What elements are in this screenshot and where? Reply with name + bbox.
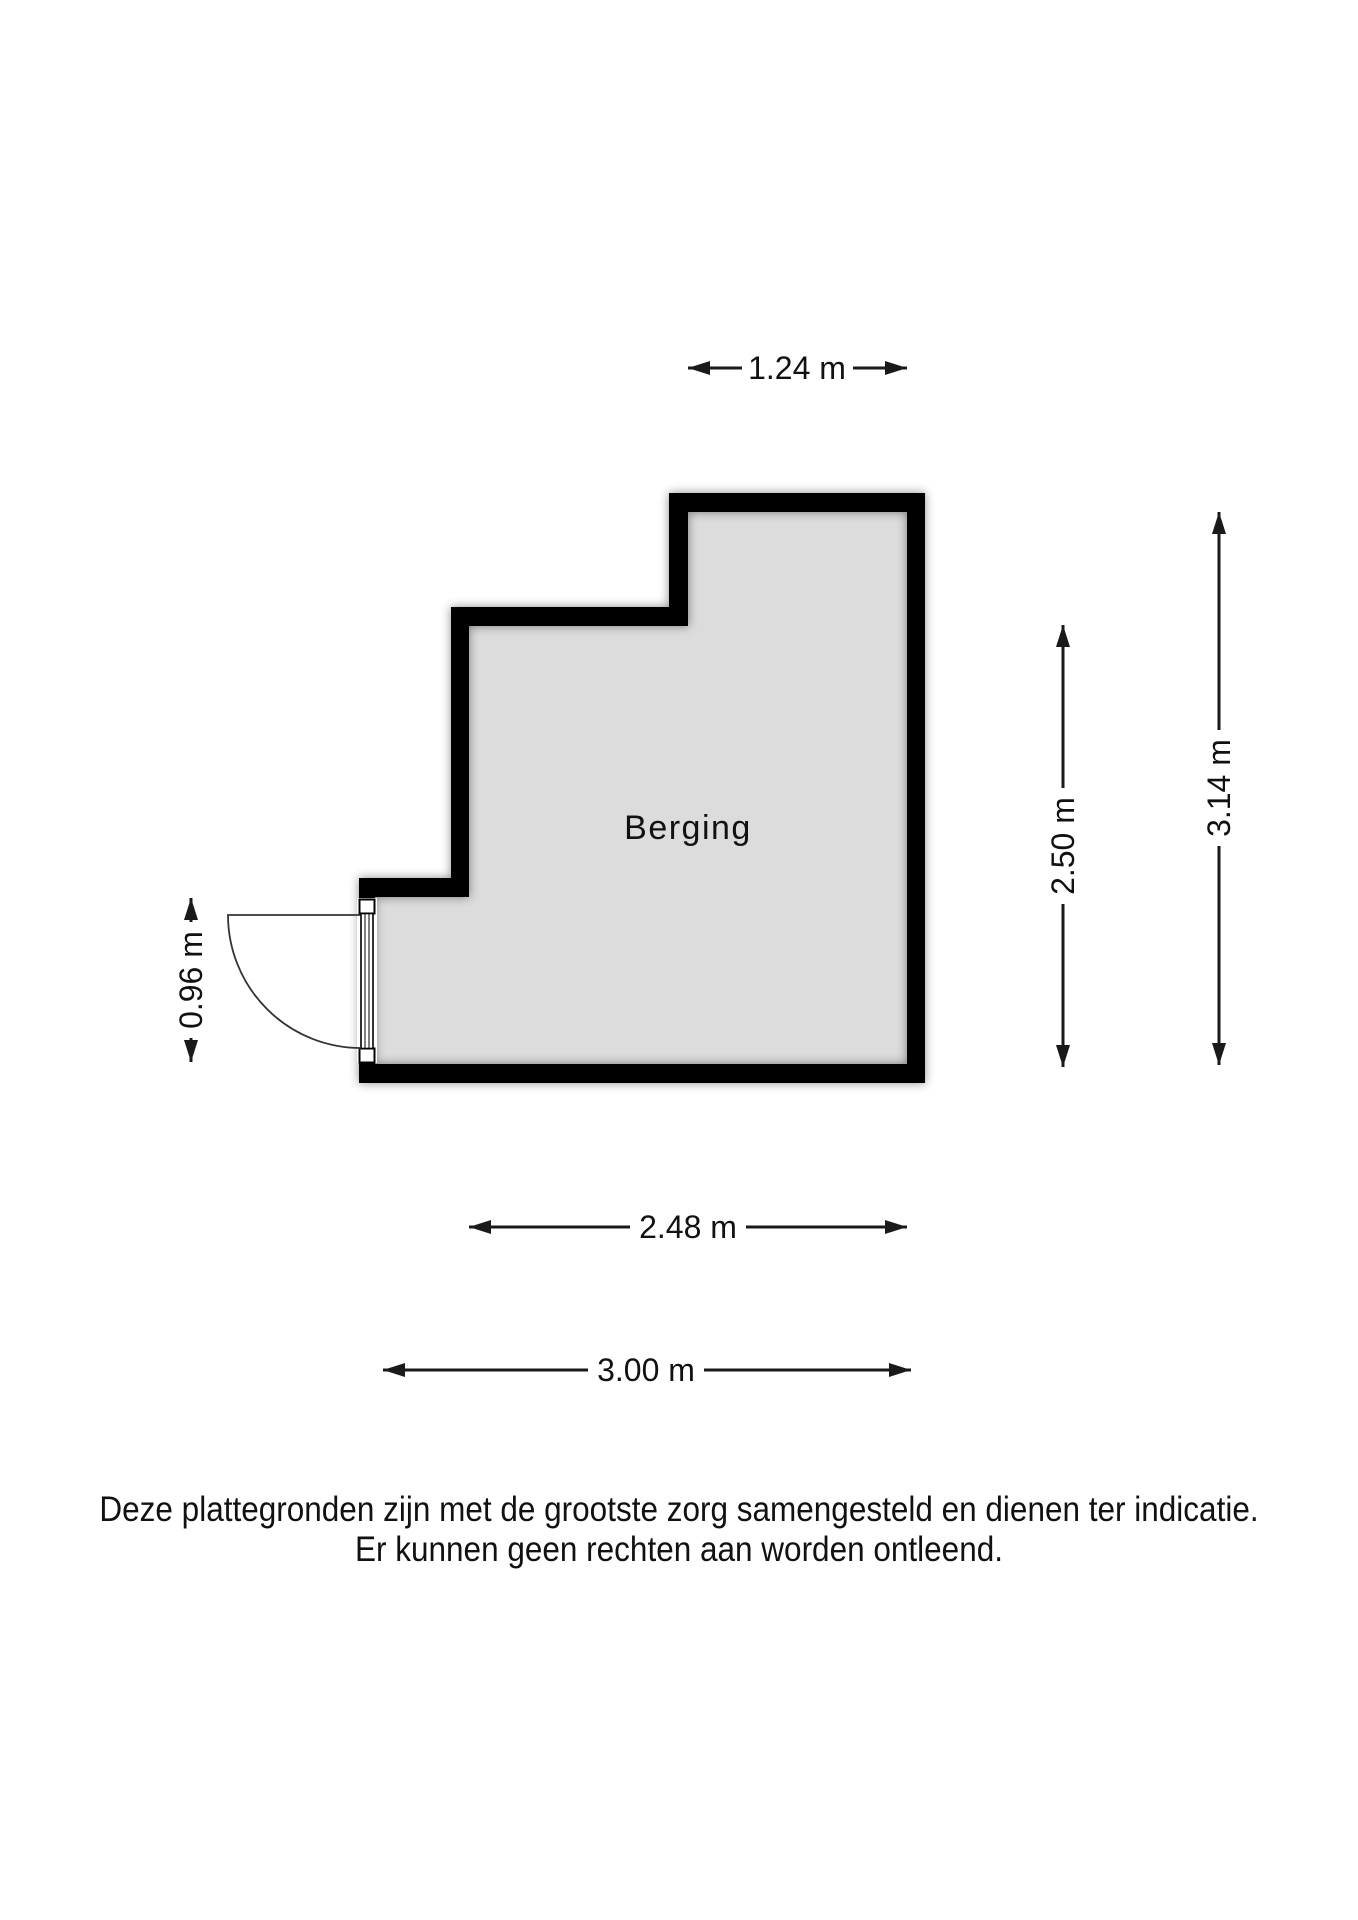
dim-inner-height-label: 2.50 m <box>1045 797 1081 895</box>
dim-door-opening: 0.96 m <box>173 898 209 1062</box>
dim-door-opening-label: 0.96 m <box>173 931 209 1029</box>
dim-outer-height: 3.14 m <box>1201 512 1237 1065</box>
dim-bottom-inner-width-label: 2.48 m <box>639 1209 737 1245</box>
dim-bottom-outer-width: 3.00 m <box>383 1352 911 1388</box>
room-label: Berging <box>624 809 752 847</box>
dim-outer-height-label: 3.14 m <box>1201 739 1237 837</box>
dim-top-width: 1.24 m <box>688 350 907 386</box>
disclaimer-line-2: Er kunnen geen rechten aan worden ontlee… <box>68 1530 1290 1570</box>
door-jamb-bottom <box>360 1049 375 1063</box>
disclaimer-line-1: Deze plattegronden zijn met de grootste … <box>68 1490 1290 1530</box>
disclaimer: Deze plattegronden zijn met de grootste … <box>68 1490 1290 1570</box>
door-leaf <box>361 914 373 1049</box>
door-jamb-top <box>360 900 375 914</box>
door-swing-arc <box>228 915 361 1048</box>
room-berging <box>359 493 925 1083</box>
door <box>228 898 377 1063</box>
dim-bottom-outer-width-label: 3.00 m <box>597 1352 695 1388</box>
floor-plan: 1.24 m 2.50 m 3.14 m 0.96 m <box>0 0 1358 1920</box>
floorplan-page: 1.24 m 2.50 m 3.14 m 0.96 m <box>0 0 1358 1920</box>
dim-bottom-inner-width: 2.48 m <box>469 1209 907 1245</box>
dim-inner-height: 2.50 m <box>1045 625 1081 1067</box>
dim-top-width-label: 1.24 m <box>748 350 846 386</box>
